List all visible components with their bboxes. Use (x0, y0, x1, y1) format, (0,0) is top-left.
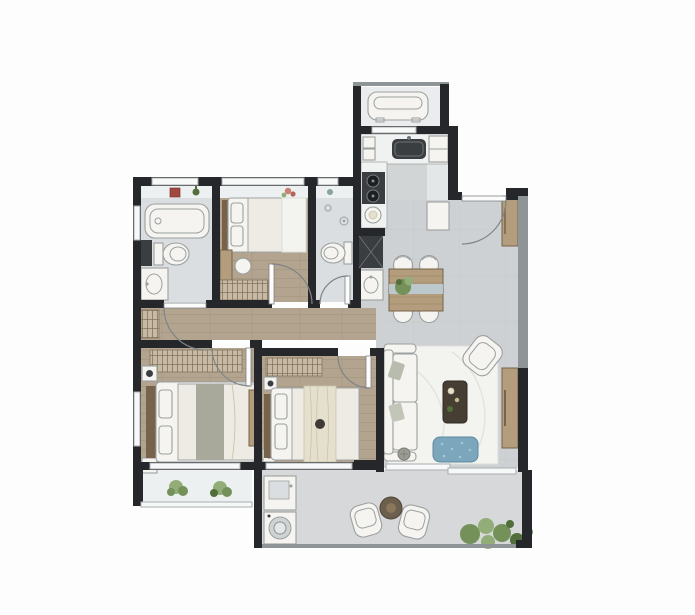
master-bed (146, 382, 256, 462)
vanity-1 (141, 268, 168, 300)
decor-vase (327, 189, 333, 195)
blue-pouf (433, 437, 478, 462)
single-bed (222, 198, 306, 252)
round-side-table (380, 497, 402, 519)
hallway-cabinet (141, 310, 159, 338)
floors (141, 87, 532, 544)
kitchen-pass-through (372, 127, 416, 133)
window-west-bath (134, 206, 140, 240)
toilet-1 (154, 243, 189, 265)
bay-window-sill (141, 470, 252, 504)
small-bedroom-wardrobe (220, 280, 268, 300)
floor-plan-image (0, 0, 695, 615)
window-north-2 (222, 178, 304, 185)
shoe-cabinet (502, 196, 518, 246)
bedroom-3-bed (264, 386, 359, 462)
island-cabinet (427, 202, 449, 230)
washing-machine (264, 512, 296, 544)
decor-frame (170, 188, 180, 197)
stove (362, 172, 385, 204)
wash-basin-nook (359, 270, 383, 300)
bedroom-3-wardrobe (266, 358, 322, 376)
sofa (384, 344, 417, 461)
master-wardrobe (150, 350, 242, 372)
coffee-table (443, 381, 467, 423)
master-bay-opening (150, 463, 240, 469)
bed-runner (196, 384, 224, 460)
ac-outdoor-unit (368, 92, 428, 122)
toilet-2 (321, 242, 352, 264)
hallway-planks (141, 308, 376, 340)
bay-window-glass (141, 502, 252, 507)
laundry-sink (264, 476, 296, 510)
master-bedroom-furniture (142, 350, 256, 473)
tv-cabinet (502, 368, 518, 448)
nightstand (142, 366, 157, 381)
window-north-3 (318, 178, 338, 185)
desk (220, 250, 232, 280)
wash-basin (359, 270, 383, 300)
bathtub (145, 204, 209, 238)
bedroom-3-window (266, 463, 352, 469)
floor-lamp (398, 448, 410, 460)
window-west-master (134, 392, 140, 446)
bath-cabinet (141, 240, 152, 266)
floor-plan-svg (0, 0, 695, 615)
window-north-1 (152, 178, 198, 185)
living-room-furniture (384, 332, 518, 464)
bed-decor (315, 419, 325, 429)
